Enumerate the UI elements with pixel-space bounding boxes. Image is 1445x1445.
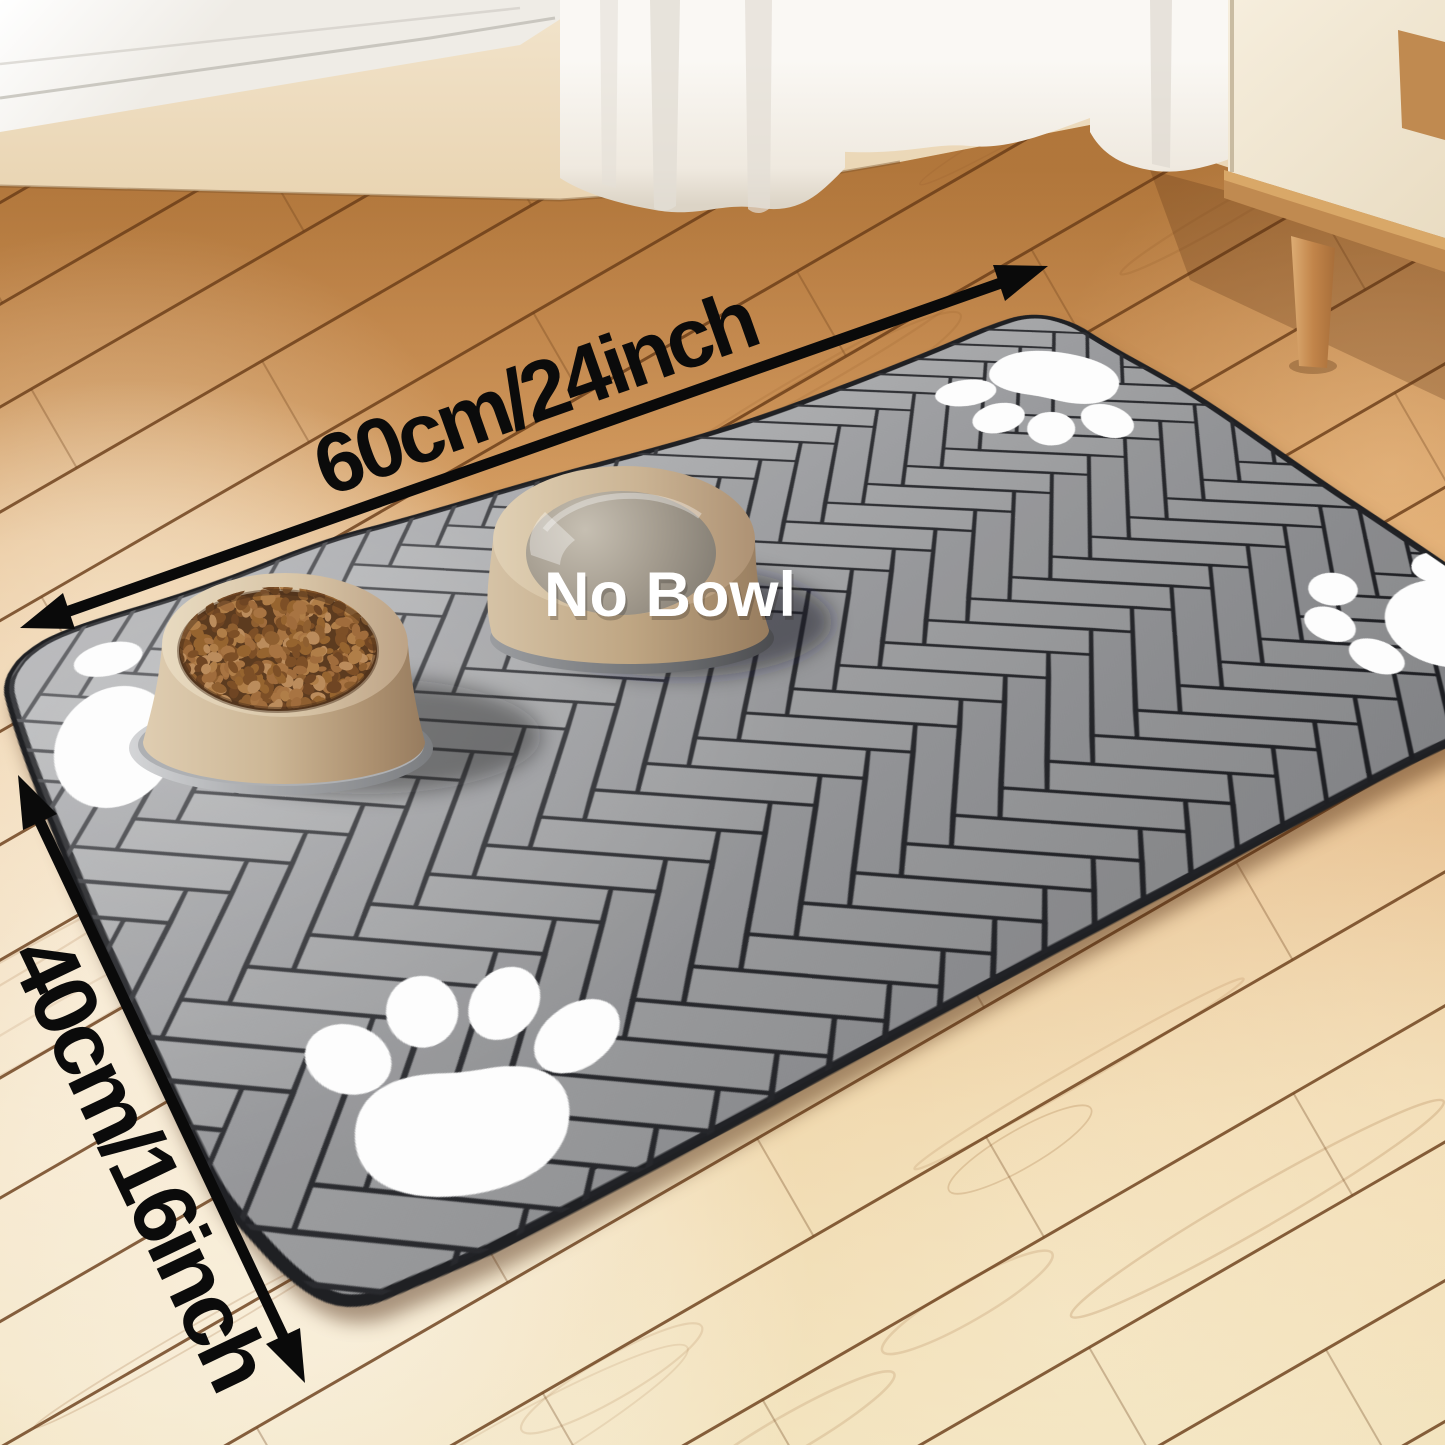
svg-text:40cm/16inch: 40cm/16inch (0, 922, 289, 1403)
svg-text:No Bowl: No Bowl (544, 560, 796, 630)
